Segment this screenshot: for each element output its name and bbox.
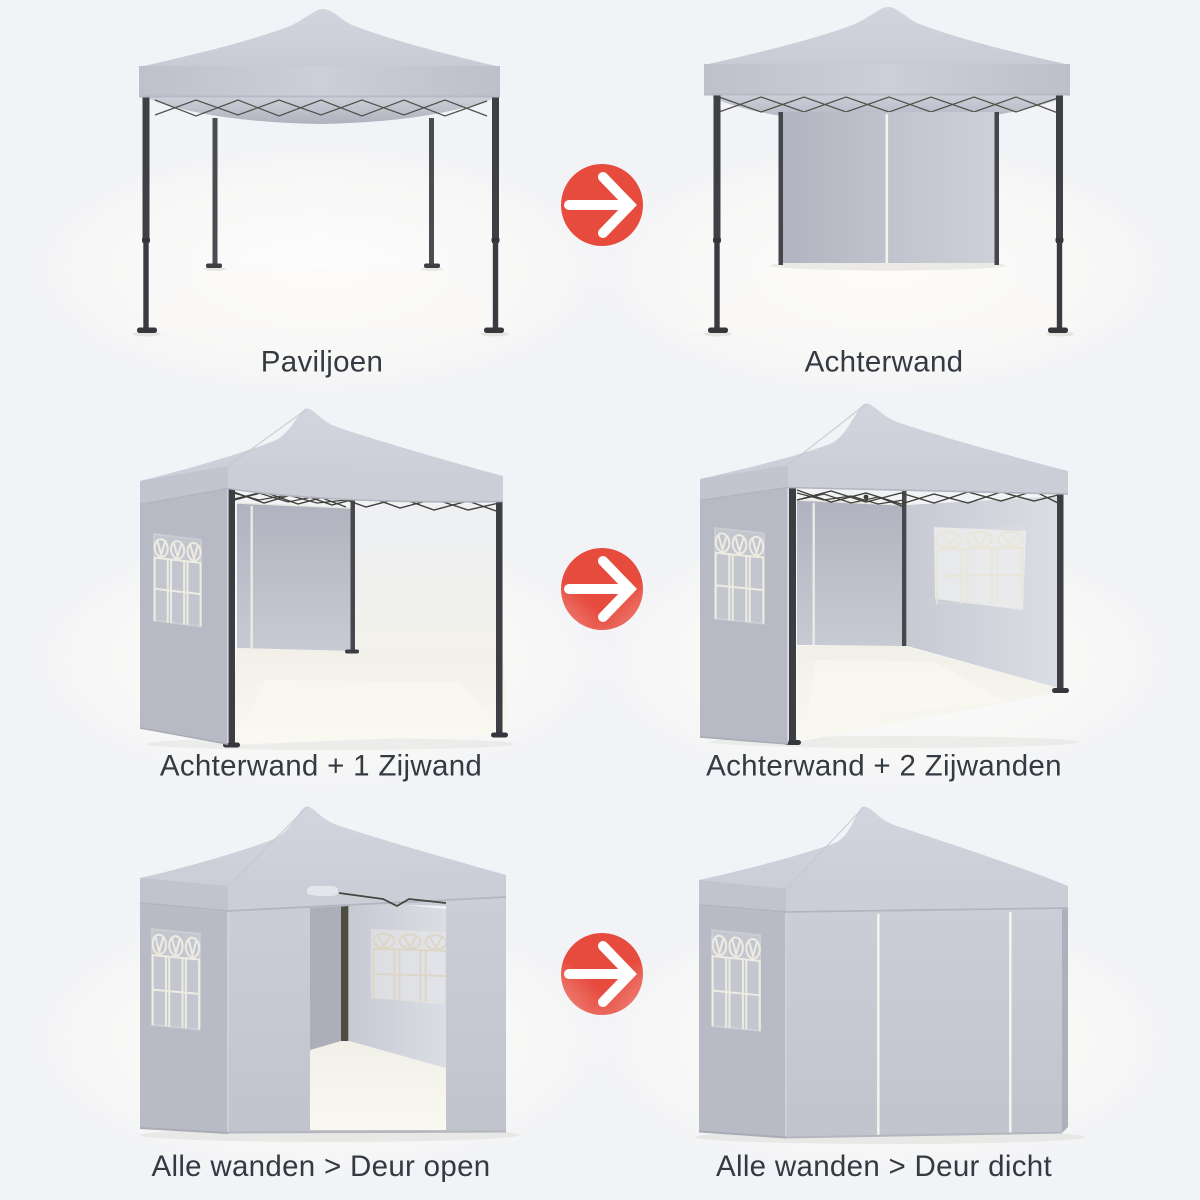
svg-text:Achterwand + 2 Zijwanden: Achterwand + 2 Zijwanden [706,750,1062,783]
svg-text:Alle wanden > Deur open: Alle wanden > Deur open [151,1150,490,1183]
svg-text:Alle wanden > Deur dicht: Alle wanden > Deur dicht [716,1150,1052,1183]
svg-text:Achterwand: Achterwand [805,346,964,379]
svg-text:Paviljoen: Paviljoen [261,346,383,379]
svg-text:Achterwand + 1 Zijwand: Achterwand + 1 Zijwand [160,750,482,783]
